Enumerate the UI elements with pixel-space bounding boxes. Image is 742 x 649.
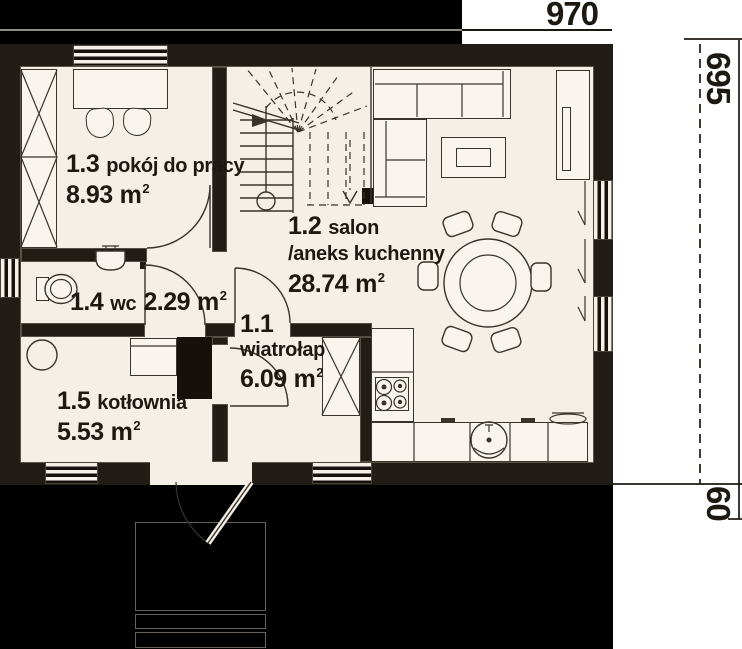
room-number: 1.1 — [240, 310, 273, 339]
boiler — [27, 340, 57, 370]
room-unit: m2 — [111, 418, 140, 450]
room-name-line2: /aneks kuchenny — [288, 243, 445, 266]
window-arrows — [578, 181, 585, 321]
room-name: kotłownia — [97, 389, 187, 418]
room-number: 1.5 — [57, 387, 90, 416]
room-area: 28.74 — [288, 270, 348, 299]
sofa-cushion-lines — [375, 71, 503, 197]
door-entrance — [176, 482, 251, 543]
plan-linework — [0, 0, 742, 649]
room-unit: m2 — [120, 181, 149, 213]
wc-sink — [96, 246, 125, 270]
floor-plan-canvas: 970 695 60 — [0, 0, 742, 649]
room-unit: m2 — [197, 288, 226, 320]
dimension-lines-right — [613, 39, 742, 519]
label-room-study: 1.3 pokój do pracy 8.93 m2 — [66, 150, 244, 213]
staircase — [233, 67, 371, 213]
room-area: 8.93 — [66, 181, 113, 210]
counter-divisions — [371, 372, 548, 462]
room-unit: m2 — [355, 270, 384, 302]
label-room-boiler: 1.5 kotłownia 5.53 m2 — [57, 387, 187, 450]
label-room-wc: 1.4 wc 2.29 m2 — [70, 288, 227, 320]
room-area: 6.09 — [240, 365, 287, 394]
label-room-vestibule: 1.1 wiatrołap 6.09 m2 — [240, 310, 325, 397]
room-name: pokój do pracy — [106, 152, 244, 181]
kitchen-sink — [471, 422, 507, 458]
room-name: salon — [328, 214, 379, 243]
dining-table — [444, 239, 532, 327]
room-number: 1.3 — [66, 150, 99, 179]
room-unit: m2 — [294, 365, 323, 397]
room-number: 1.4 — [70, 288, 103, 317]
room-name: wiatrołap — [240, 339, 325, 362]
room-area: 2.29 — [143, 288, 190, 317]
room-number: 1.2 — [288, 212, 321, 241]
pot-lid — [550, 413, 586, 424]
room-name: wc — [110, 290, 136, 319]
room-area: 5.53 — [57, 418, 104, 447]
label-room-living: 1.2 salon /aneks kuchenny 28.74 m2 — [288, 212, 445, 302]
stove-burners — [377, 380, 407, 411]
